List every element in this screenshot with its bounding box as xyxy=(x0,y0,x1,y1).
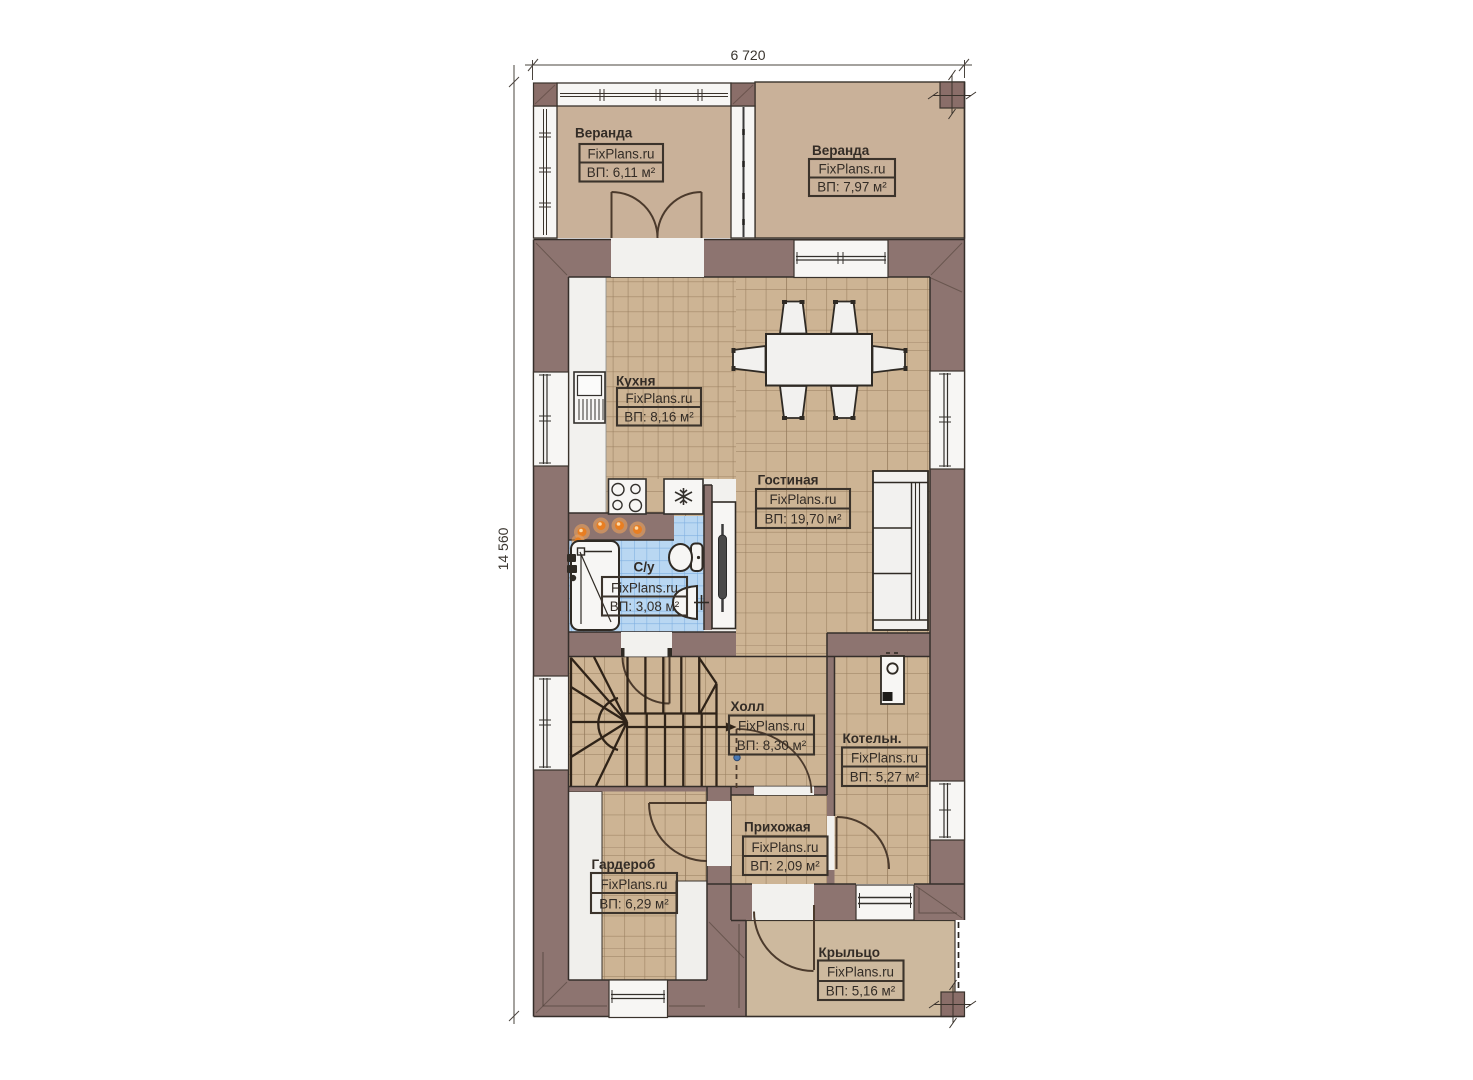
svg-text:Прихожая: Прихожая xyxy=(744,820,811,835)
svg-text:ВП: 3,08 м²: ВП: 3,08 м² xyxy=(610,599,680,614)
svg-text:ВП: 7,97 м²: ВП: 7,97 м² xyxy=(817,180,887,195)
svg-text:ВП: 5,27 м²: ВП: 5,27 м² xyxy=(850,770,920,785)
svg-text:FixPlans.ru: FixPlans.ru xyxy=(851,751,918,766)
svg-text:ВП: 8,16 м²: ВП: 8,16 м² xyxy=(624,410,694,425)
svg-text:ВП: 8,30 м²: ВП: 8,30 м² xyxy=(737,738,807,753)
svg-text:С/у: С/у xyxy=(634,560,656,575)
svg-text:FixPlans.ru: FixPlans.ru xyxy=(626,391,693,406)
svg-text:FixPlans.ru: FixPlans.ru xyxy=(588,147,655,162)
svg-text:FixPlans.ru: FixPlans.ru xyxy=(770,492,837,507)
svg-text:FixPlans.ru: FixPlans.ru xyxy=(601,877,668,892)
svg-text:FixPlans.ru: FixPlans.ru xyxy=(752,840,819,855)
svg-text:Гардероб: Гардероб xyxy=(592,857,656,872)
svg-text:Крыльцо: Крыльцо xyxy=(819,945,880,960)
svg-text:ВП: 2,09 м²: ВП: 2,09 м² xyxy=(750,859,820,874)
svg-text:FixPlans.ru: FixPlans.ru xyxy=(827,965,894,980)
svg-text:ВП: 6,11 м²: ВП: 6,11 м² xyxy=(587,165,656,180)
svg-text:ВП: 19,70 м²: ВП: 19,70 м² xyxy=(765,512,842,527)
svg-text:6 720: 6 720 xyxy=(730,47,765,63)
svg-text:Котельн.: Котельн. xyxy=(843,731,902,746)
svg-text:FixPlans.ru: FixPlans.ru xyxy=(738,719,805,734)
svg-text:14 560: 14 560 xyxy=(495,527,511,570)
svg-text:Кухня: Кухня xyxy=(616,374,655,389)
svg-text:Веранда: Веранда xyxy=(575,126,633,141)
svg-text:ВП: 5,16 м²: ВП: 5,16 м² xyxy=(826,984,896,999)
svg-text:FixPlans.ru: FixPlans.ru xyxy=(819,162,886,177)
svg-text:ВП: 6,29 м²: ВП: 6,29 м² xyxy=(599,897,669,912)
svg-text:Гостиная: Гостиная xyxy=(758,473,819,488)
svg-text:FixPlans.ru: FixPlans.ru xyxy=(611,581,678,596)
svg-text:Веранда: Веранда xyxy=(812,143,870,158)
svg-text:Холл: Холл xyxy=(731,699,765,714)
